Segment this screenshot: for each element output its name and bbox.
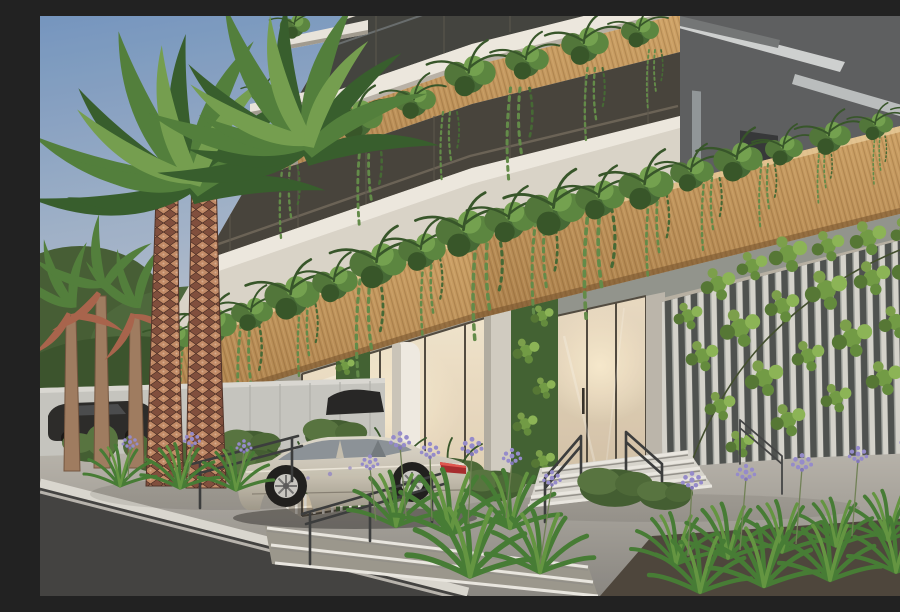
architectural-render	[40, 16, 900, 596]
dusk-tint	[40, 16, 900, 596]
